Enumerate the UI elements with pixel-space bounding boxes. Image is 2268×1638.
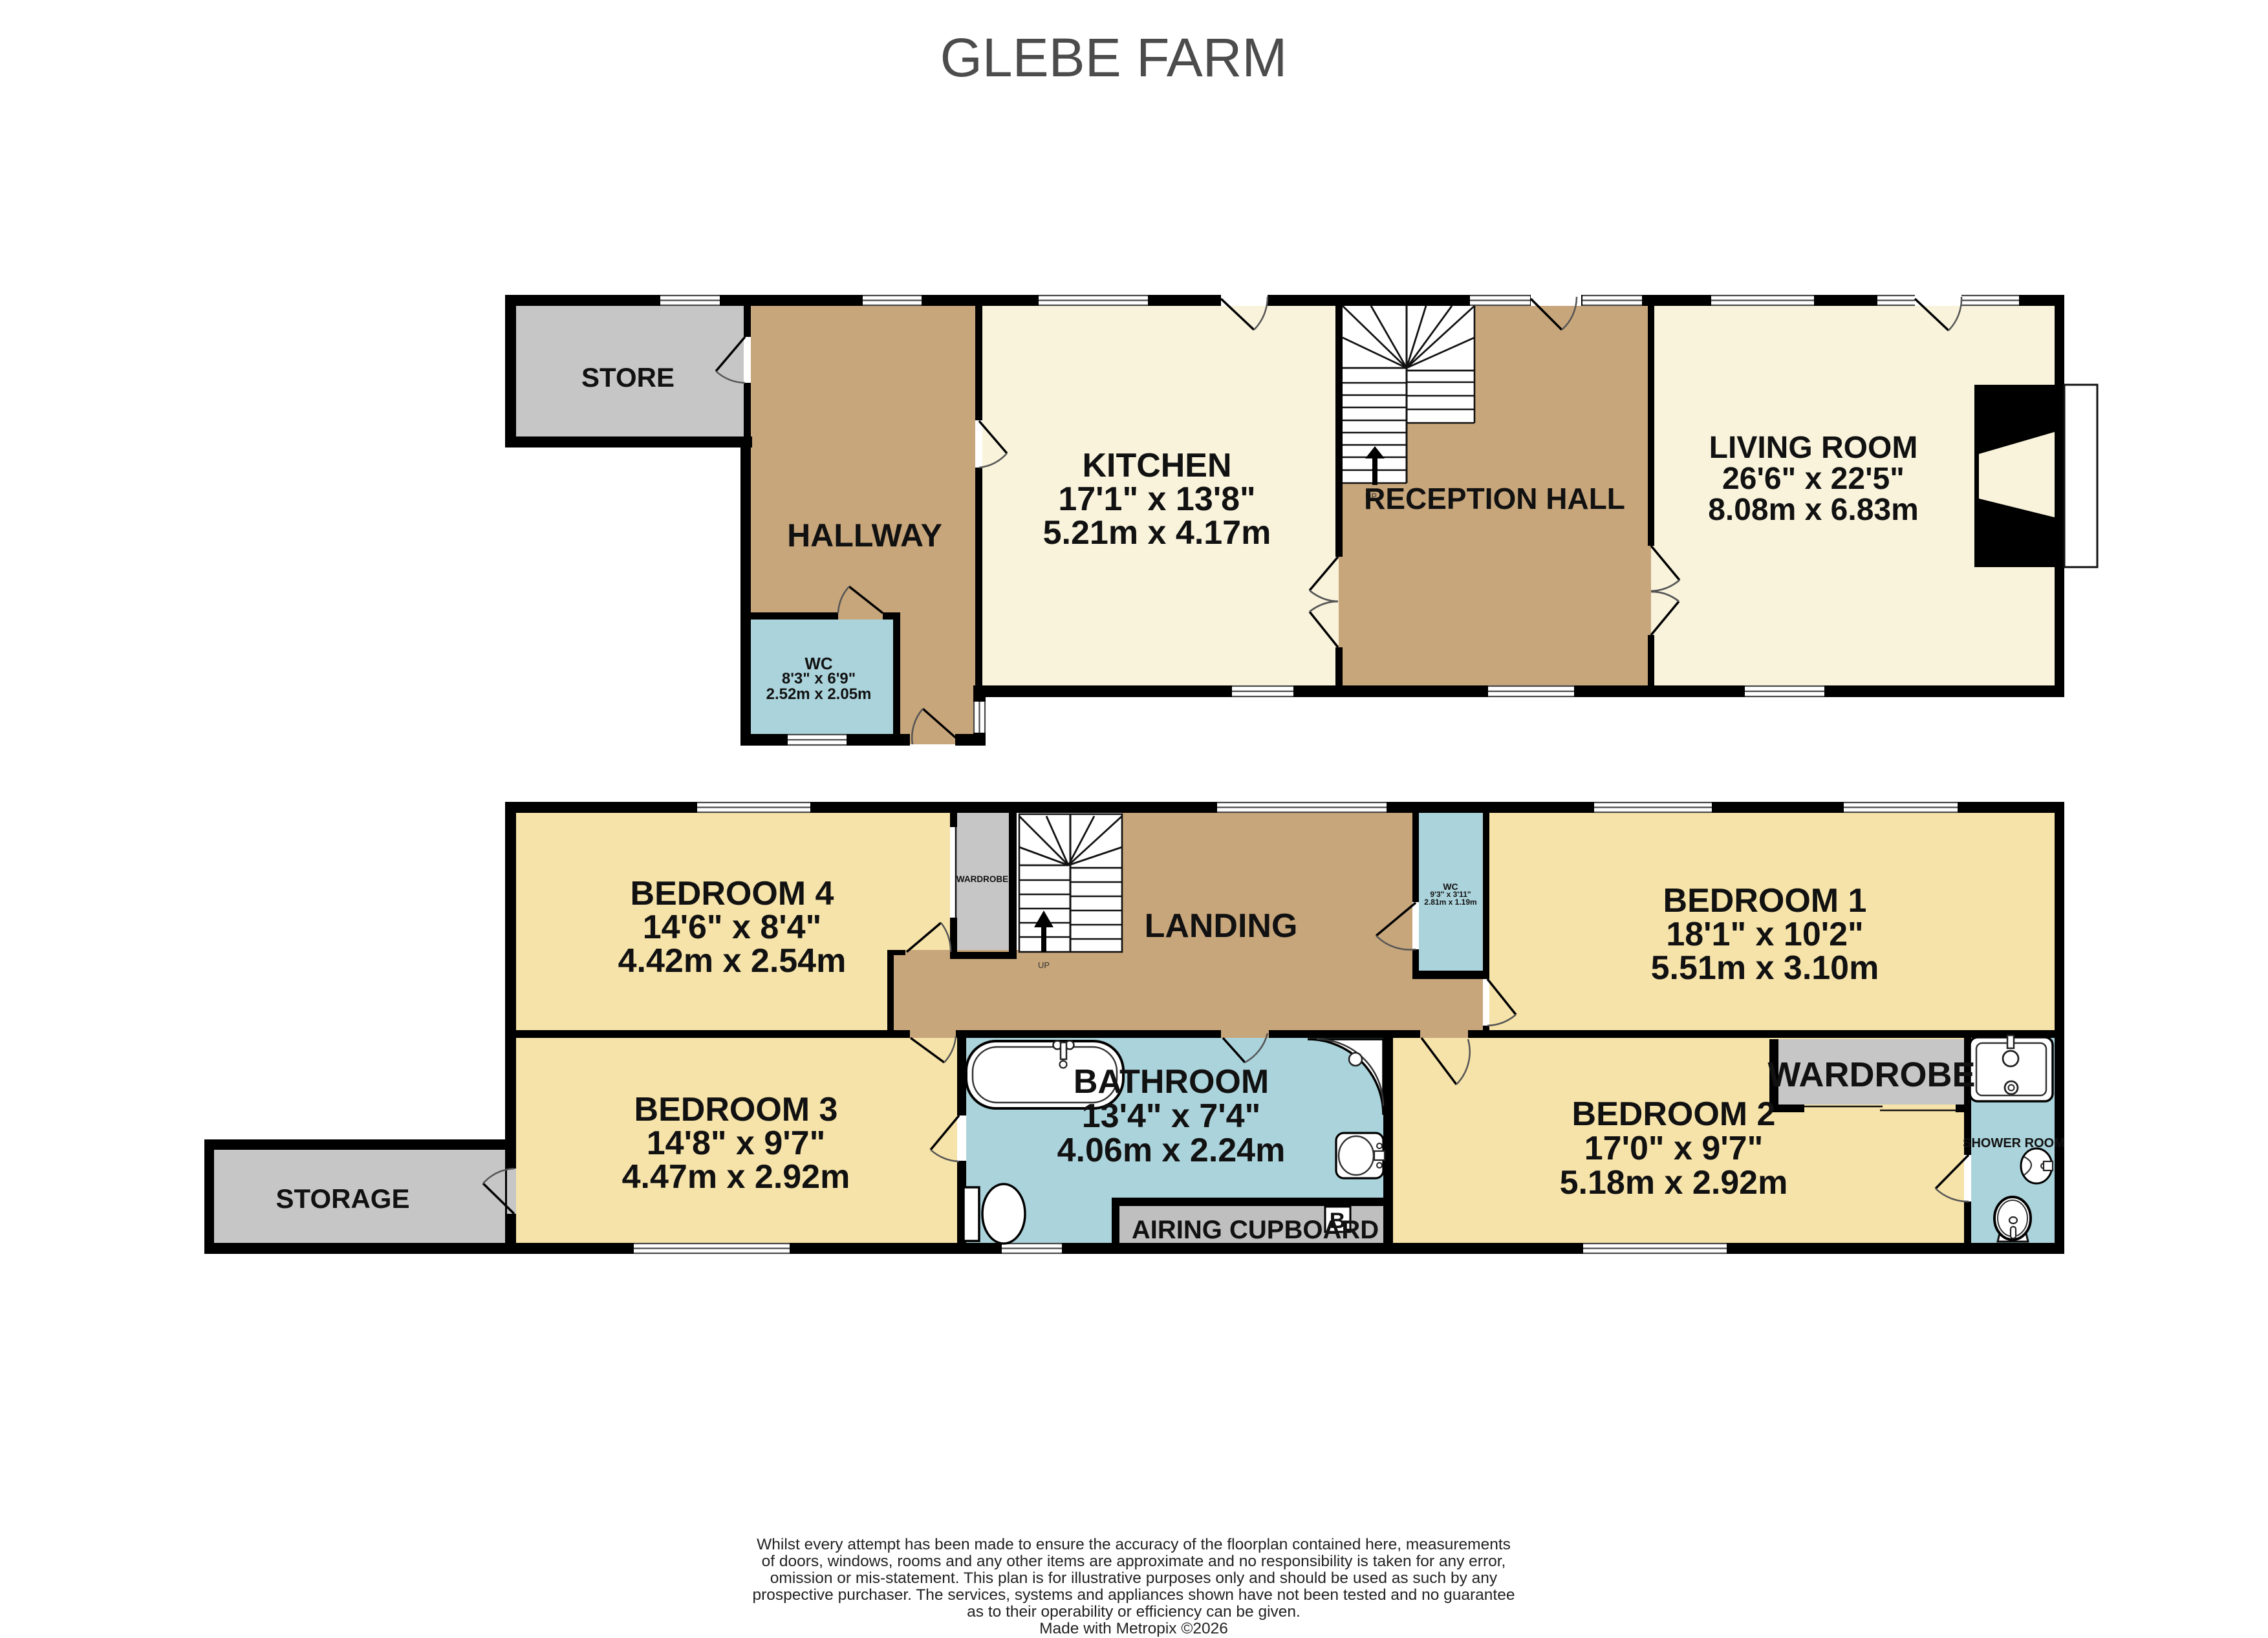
svg-text:13'4" x 7'4": 13'4" x 7'4" [1082,1097,1260,1135]
svg-text:of doors, windows, rooms and a: of doors, windows, rooms and any other i… [762,1553,1506,1570]
svg-text:26'6" x 22'5": 26'6" x 22'5" [1722,462,1905,496]
svg-text:KITCHEN: KITCHEN [1082,447,1231,484]
svg-text:WARDROBE: WARDROBE [956,874,1008,884]
svg-text:4.42m x 2.54m: 4.42m x 2.54m [618,942,847,980]
svg-text:SHOWER ROOM: SHOWER ROOM [1963,1136,2065,1150]
svg-text:AIRING CUPBOARD: AIRING CUPBOARD [1132,1216,1379,1244]
svg-text:GLEBE FARM: GLEBE FARM [940,27,1288,88]
svg-text:omission or mis-statement. Thi: omission or mis-statement. This plan is … [770,1569,1498,1587]
svg-text:STORAGE: STORAGE [276,1183,410,1214]
svg-text:14'6" x 8'4": 14'6" x 8'4" [643,909,821,946]
svg-text:BEDROOM 1: BEDROOM 1 [1663,882,1867,920]
svg-text:STORE: STORE [581,362,675,393]
svg-text:18'1" x 10'2": 18'1" x 10'2" [1666,916,1863,953]
svg-text:2.81m x 1.19m: 2.81m x 1.19m [1424,898,1476,907]
svg-text:BATHROOM: BATHROOM [1074,1063,1269,1101]
svg-text:17'0" x 9'7": 17'0" x 9'7" [1584,1130,1763,1167]
svg-text:14'8" x 9'7": 14'8" x 9'7" [647,1125,825,1162]
svg-text:4.06m x 2.24m: 4.06m x 2.24m [1057,1132,1286,1169]
svg-text:HALLWAY: HALLWAY [787,517,942,554]
svg-text:as to their operability or eff: as to their operability or efficiency ca… [967,1603,1301,1621]
svg-text:LIVING ROOM: LIVING ROOM [1709,431,1918,465]
svg-text:17'1" x 13'8": 17'1" x 13'8" [1058,480,1255,518]
svg-text:LANDING: LANDING [1145,907,1298,945]
svg-text:BEDROOM 2: BEDROOM 2 [1572,1095,1776,1133]
svg-text:Whilst every attempt has been: Whilst every attempt has been made to en… [757,1536,1511,1553]
svg-text:8.08m x 6.83m: 8.08m x 6.83m [1708,493,1919,527]
svg-text:5.51m x 3.10m: 5.51m x 3.10m [1651,949,1879,987]
svg-text:5.18m x 2.92m: 5.18m x 2.92m [1560,1164,1788,1202]
svg-text:Made with Metropix ©2026: Made with Metropix ©2026 [1039,1620,1228,1637]
svg-text:2.52m x 2.05m: 2.52m x 2.05m [766,685,872,703]
svg-text:4.47m x 2.92m: 4.47m x 2.92m [622,1158,850,1196]
svg-text:BEDROOM 3: BEDROOM 3 [634,1091,838,1128]
svg-text:WARDROBE: WARDROBE [1768,1055,1976,1094]
svg-text:UP: UP [1038,960,1050,970]
svg-text:8'3" x 6'9": 8'3" x 6'9" [782,670,856,687]
svg-text:prospective purchaser. The ser: prospective purchaser. The services, sys… [752,1586,1515,1604]
svg-text:RECEPTION HALL: RECEPTION HALL [1364,482,1625,515]
svg-text:BEDROOM 4: BEDROOM 4 [631,875,834,912]
svg-text:5.21m x 4.17m: 5.21m x 4.17m [1043,514,1271,552]
